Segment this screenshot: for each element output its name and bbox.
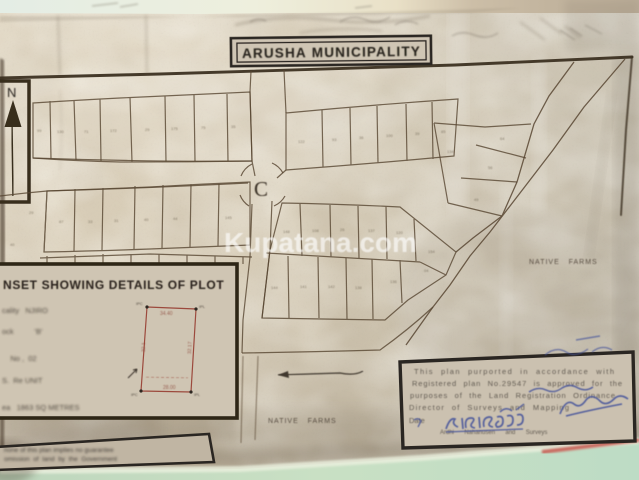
svg-text:145: 145 xyxy=(225,215,232,220)
svg-text:Date: Date xyxy=(409,416,425,425)
svg-text:64: 64 xyxy=(500,136,505,141)
svg-text:44: 44 xyxy=(173,216,178,221)
svg-text:99: 99 xyxy=(37,128,42,133)
svg-text:93: 93 xyxy=(332,137,337,142)
svg-text:75: 75 xyxy=(201,125,206,130)
svg-text:Registered plan No.29547 is ap: Registered plan No.29547 is approved for… xyxy=(412,379,622,388)
svg-text:154: 154 xyxy=(428,249,435,254)
svg-text:34.40: 34.40 xyxy=(160,311,173,317)
svg-text:Director of Surveys and Mappin: Director of Surveys and Mapping xyxy=(409,403,569,412)
svg-text:40: 40 xyxy=(10,242,15,247)
svg-text:35: 35 xyxy=(231,124,236,129)
svg-text:31: 31 xyxy=(114,218,119,223)
svg-text:none of this plan implies no g: none of this plan implies no guarantee xyxy=(2,447,114,454)
svg-text:130: 130 xyxy=(57,129,64,134)
svg-text:100: 100 xyxy=(386,133,393,138)
svg-text:49: 49 xyxy=(474,197,479,202)
svg-text:S. Re UNIT: S. Re UNIT xyxy=(2,376,43,385)
svg-text:This plan purported in accorda: This plan purported in accordance with xyxy=(414,367,614,376)
svg-text:138: 138 xyxy=(355,285,362,290)
svg-text:32.1: 32.1 xyxy=(141,342,147,352)
svg-text:29: 29 xyxy=(29,210,34,215)
svg-text:ock 'B': ock 'B' xyxy=(2,327,43,336)
svg-text:N: N xyxy=(7,85,16,100)
svg-text:28.00: 28.00 xyxy=(163,385,176,391)
svg-text:40: 40 xyxy=(144,217,149,222)
svg-text:175: 175 xyxy=(171,126,178,131)
svg-text:122: 122 xyxy=(298,139,305,144)
svg-text:IPL: IPL xyxy=(199,304,206,309)
svg-text:ARUSHA MUNICIPALITY: ARUSHA MUNICIPALITY xyxy=(242,44,420,61)
svg-text:Ardhi Nahanusen and Surveys: Ardhi Nahanusen and Surveys xyxy=(440,430,547,436)
svg-text:04: 04 xyxy=(424,268,429,273)
svg-text:NSET SHOWING DETAILS OF PLOT: NSET SHOWING DETAILS OF PLOT xyxy=(3,278,224,292)
svg-text:134: 134 xyxy=(447,149,454,154)
svg-text:32.17: 32.17 xyxy=(187,341,194,354)
svg-text:87: 87 xyxy=(59,219,64,224)
svg-text:C: C xyxy=(254,177,268,201)
svg-text:IPC: IPC xyxy=(131,392,138,397)
svg-text:29: 29 xyxy=(145,127,150,132)
svg-text:NATIVE FARMS: NATIVE FARMS xyxy=(268,418,337,425)
svg-text:IPL: IPL xyxy=(194,392,201,397)
svg-text:NATIVE FARMS: NATIVE FARMS xyxy=(529,259,598,266)
svg-text:omission of land by the G: omission of land by the Government xyxy=(4,456,117,463)
svg-text:33: 33 xyxy=(88,219,93,224)
svg-text:172: 172 xyxy=(110,128,117,133)
svg-text:ea 1863 SQ METRES: ea 1863 SQ METRES xyxy=(2,403,80,412)
svg-text:No , 02: No , 02 xyxy=(2,354,37,363)
svg-text:56: 56 xyxy=(488,165,493,170)
svg-text:141: 141 xyxy=(300,284,307,289)
svg-text:purposes of the Land Registrat: purposes of the Land Registration Ordina… xyxy=(410,391,615,400)
svg-text:85: 85 xyxy=(441,129,446,134)
svg-text:cality NJIRO: cality NJIRO xyxy=(2,306,48,315)
svg-text:71: 71 xyxy=(84,129,89,134)
svg-text:136: 136 xyxy=(390,279,397,284)
svg-text:Kupatana.com: Kupatana.com xyxy=(224,227,417,258)
svg-text:IPC: IPC xyxy=(136,301,143,306)
svg-text:144: 144 xyxy=(271,285,278,290)
svg-text:142: 142 xyxy=(328,284,335,289)
svg-text:39: 39 xyxy=(415,131,420,136)
svg-text:36: 36 xyxy=(359,135,364,140)
